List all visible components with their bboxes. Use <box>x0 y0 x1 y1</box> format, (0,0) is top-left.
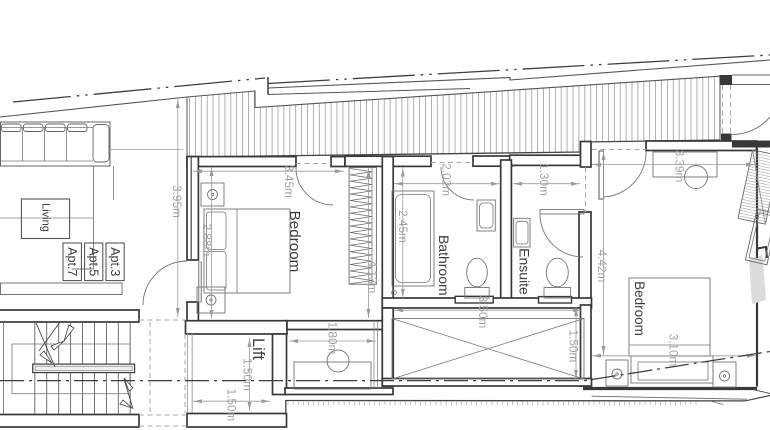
svg-text:3.45m: 3.45m <box>282 165 296 198</box>
svg-text:3.95m: 3.95m <box>170 185 184 218</box>
svg-text:1.80m: 1.80m <box>326 322 340 355</box>
svg-text:1.50m: 1.50m <box>241 358 255 391</box>
svg-text:4.42m: 4.42m <box>595 250 609 283</box>
svg-text:1.30m: 1.30m <box>537 163 551 196</box>
svg-text:Apt.5: Apt.5 <box>87 247 101 276</box>
svg-text:2.02m: 2.02m <box>440 163 454 196</box>
svg-text:4.13m: 4.13m <box>366 261 380 294</box>
svg-text:3.10m: 3.10m <box>667 334 681 367</box>
svg-text:Apt.7: Apt.7 <box>65 247 79 276</box>
svg-text:3.50m: 3.50m <box>476 296 490 329</box>
svg-text:Living: Living <box>40 203 52 232</box>
svg-text:Apt.3: Apt.3 <box>108 247 122 276</box>
svg-text:3.39m: 3.39m <box>673 150 687 183</box>
svg-text:1.50m: 1.50m <box>567 330 581 363</box>
svg-text:Bedroom: Bedroom <box>286 211 303 273</box>
svg-text:Lift: Lift <box>249 338 267 360</box>
svg-text:1.50m: 1.50m <box>225 389 239 422</box>
svg-text:2.45m: 2.45m <box>396 210 410 243</box>
svg-text:Bathroom: Bathroom <box>436 235 452 296</box>
svg-text:Ensuite: Ensuite <box>517 248 533 295</box>
svg-text:Bedroom: Bedroom <box>632 281 647 336</box>
svg-text:2.88m: 2.88m <box>200 224 214 257</box>
